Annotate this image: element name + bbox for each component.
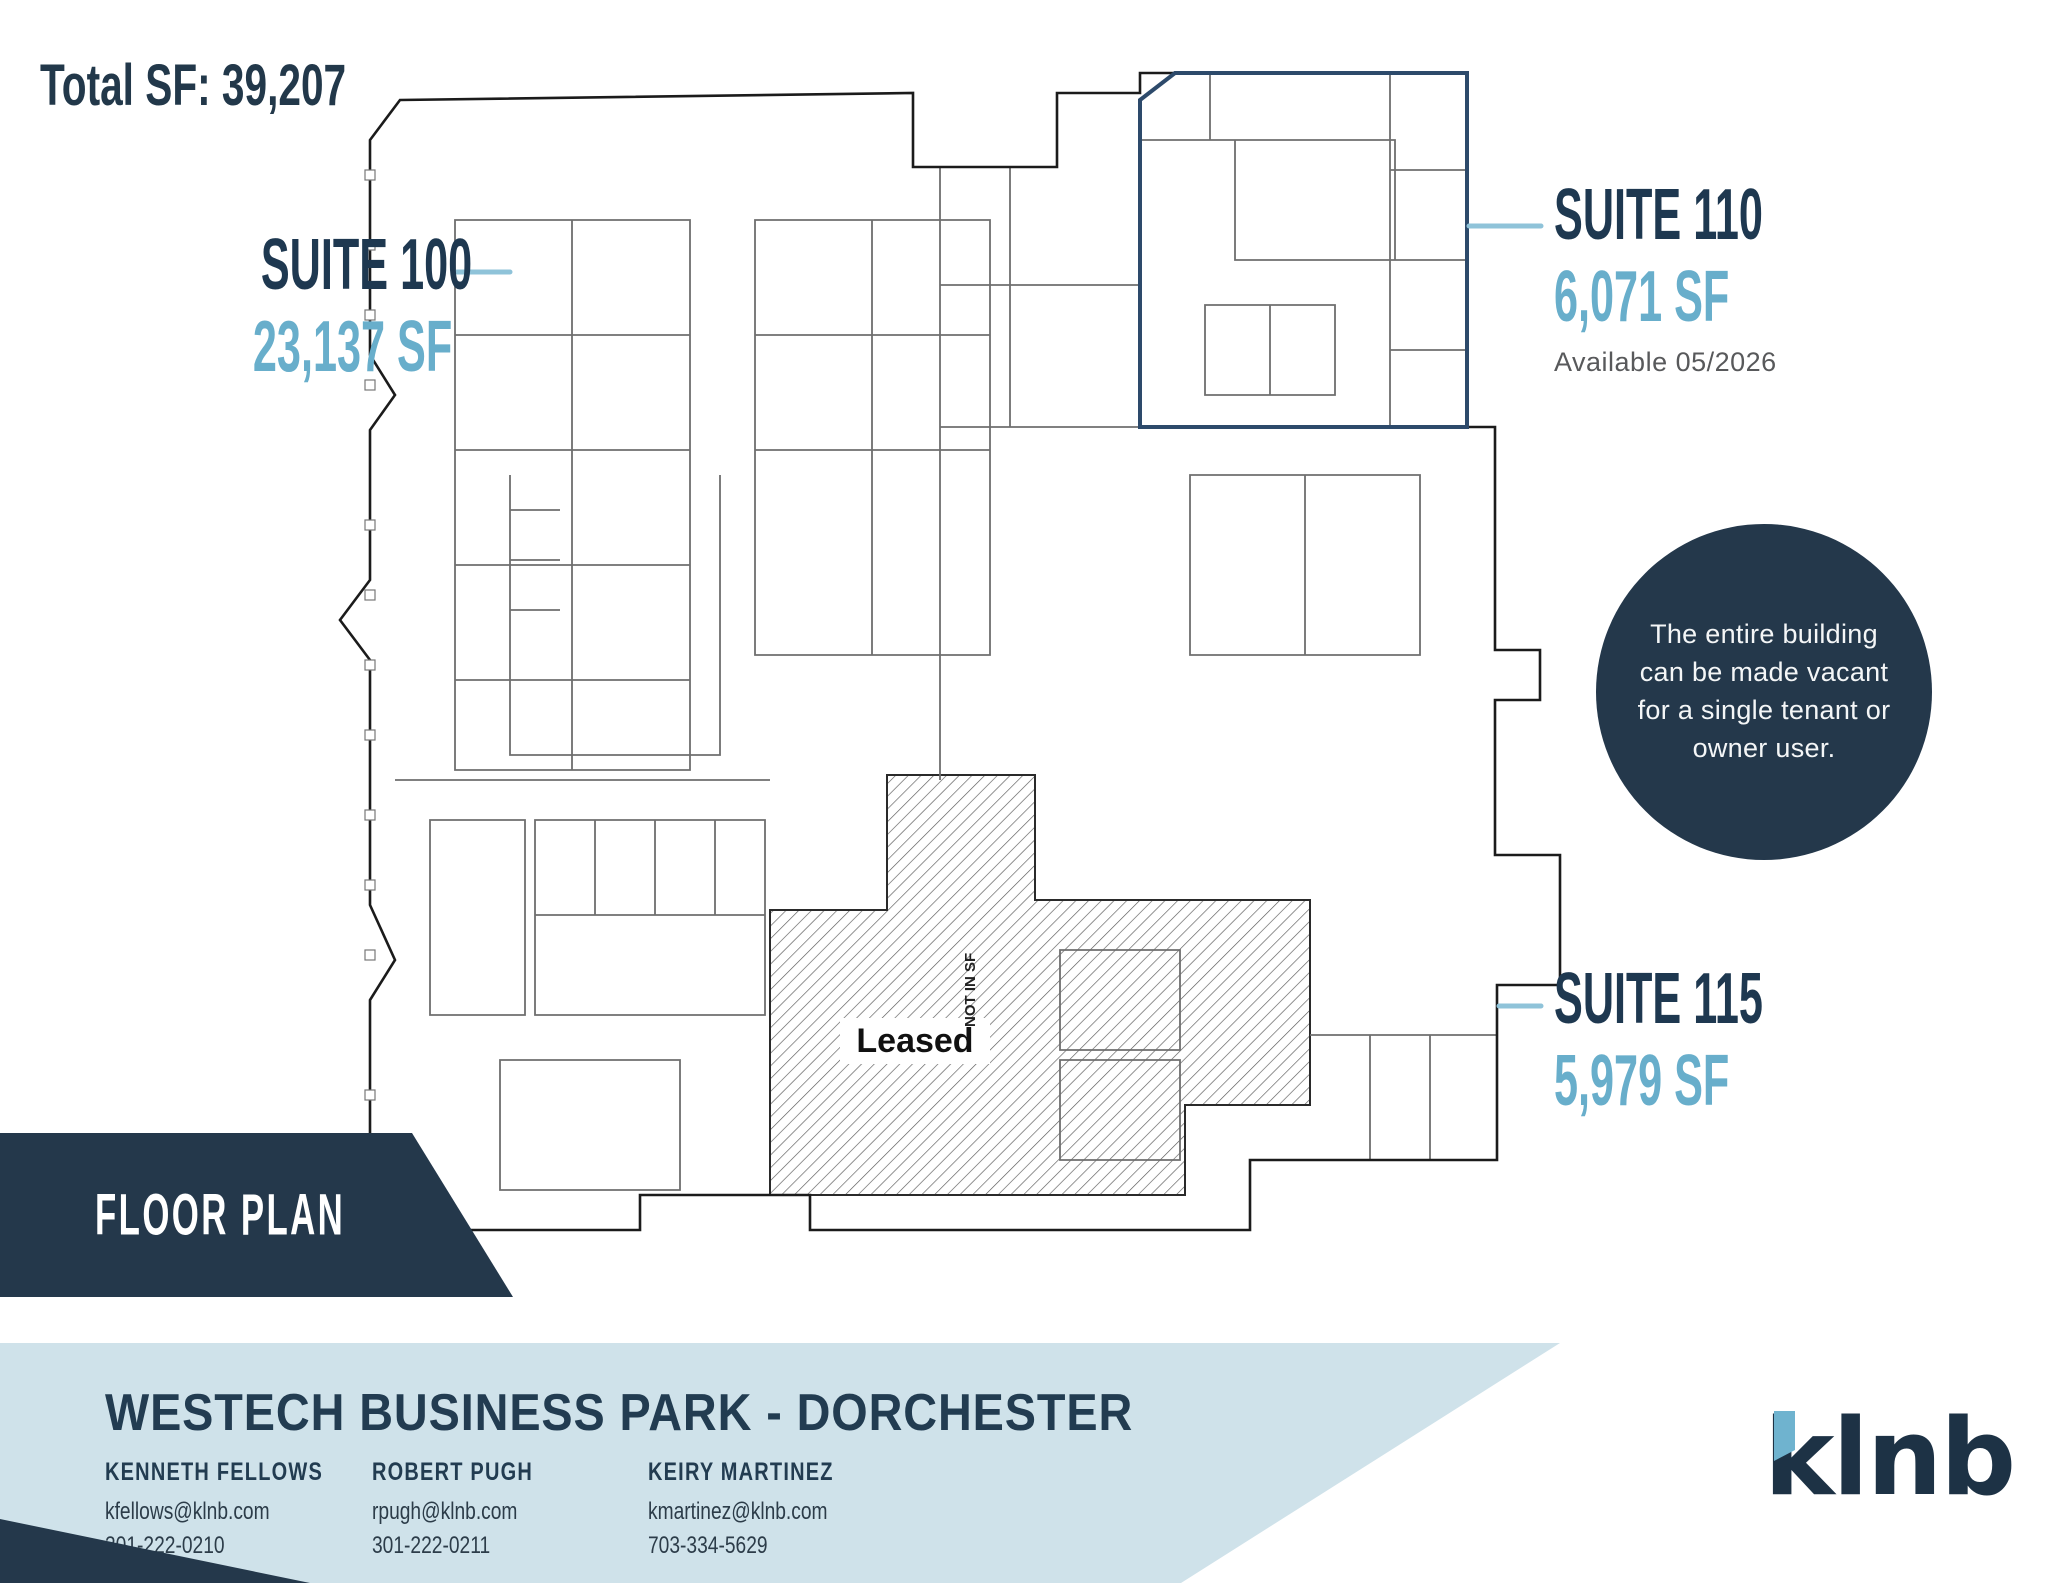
floor-plan: Leased NOT IN SF — [330, 55, 1570, 1245]
contact-card-keiry-martinez: KEIRY MARTINEZ kmartinez@klnb.com 703-33… — [648, 1458, 834, 1563]
contact-name: ROBERT PUGH — [372, 1458, 533, 1487]
callout-text: The entire building can be made vacant f… — [1629, 616, 1899, 767]
flyer-page: Total SF: 39,207 — [0, 0, 2048, 1583]
suite-110-sf: 6,071 SF — [1554, 260, 1729, 334]
total-sf-text: Total SF: 39,207 — [40, 52, 346, 119]
suite-110-label: SUITE 110 6,071 SF Available 05/2026 — [1554, 178, 1902, 378]
contact-name: KENNETH FELLOWS — [105, 1458, 323, 1487]
suite-100-name: SUITE 100 — [261, 228, 472, 302]
contact-phone: 703-334-5629 — [648, 1529, 834, 1563]
not-in-sf-label: NOT IN SF — [962, 953, 979, 1027]
callout-circle: The entire building can be made vacant f… — [1596, 524, 1932, 860]
contact-phone: 301-222-0211 — [372, 1529, 533, 1563]
leased-label: Leased — [856, 1022, 973, 1060]
suite-110-outline — [1140, 73, 1467, 427]
klnb-logo: klnb — [1760, 1398, 2020, 1518]
suite-110-name: SUITE 110 — [1554, 178, 1763, 252]
contact-name: KEIRY MARTINEZ — [648, 1458, 834, 1487]
suite-115-label: SUITE 115 5,979 SF — [1554, 962, 1902, 1118]
suite-115-sf: 5,979 SF — [1554, 1044, 1729, 1118]
klnb-logo-text: klnb — [1764, 1398, 2014, 1518]
floor-plan-banner-label: FLOOR PLAN — [95, 1182, 345, 1249]
leased-area — [770, 775, 1310, 1195]
suite-100-sf: 23,137 SF — [253, 310, 452, 384]
suite-100-label: SUITE 100 23,137 SF — [120, 228, 450, 384]
contact-email: rpugh@klnb.com — [372, 1495, 533, 1529]
footer-band: WESTECH BUSINESS PARK - DORCHESTER KENNE… — [0, 1343, 1560, 1583]
suite-115-name: SUITE 115 — [1554, 962, 1763, 1036]
contact-card-robert-pugh: ROBERT PUGH rpugh@klnb.com 301-222-0211 — [372, 1458, 533, 1563]
property-title: WESTECH BUSINESS PARK - DORCHESTER — [105, 1383, 1133, 1443]
suite-110-availability: Available 05/2026 — [1554, 346, 1902, 378]
contact-card-kenneth-fellows: KENNETH FELLOWS kfellows@klnb.com 301-22… — [105, 1458, 323, 1563]
contact-email: kfellows@klnb.com — [105, 1495, 323, 1529]
contact-email: kmartinez@klnb.com — [648, 1495, 834, 1529]
